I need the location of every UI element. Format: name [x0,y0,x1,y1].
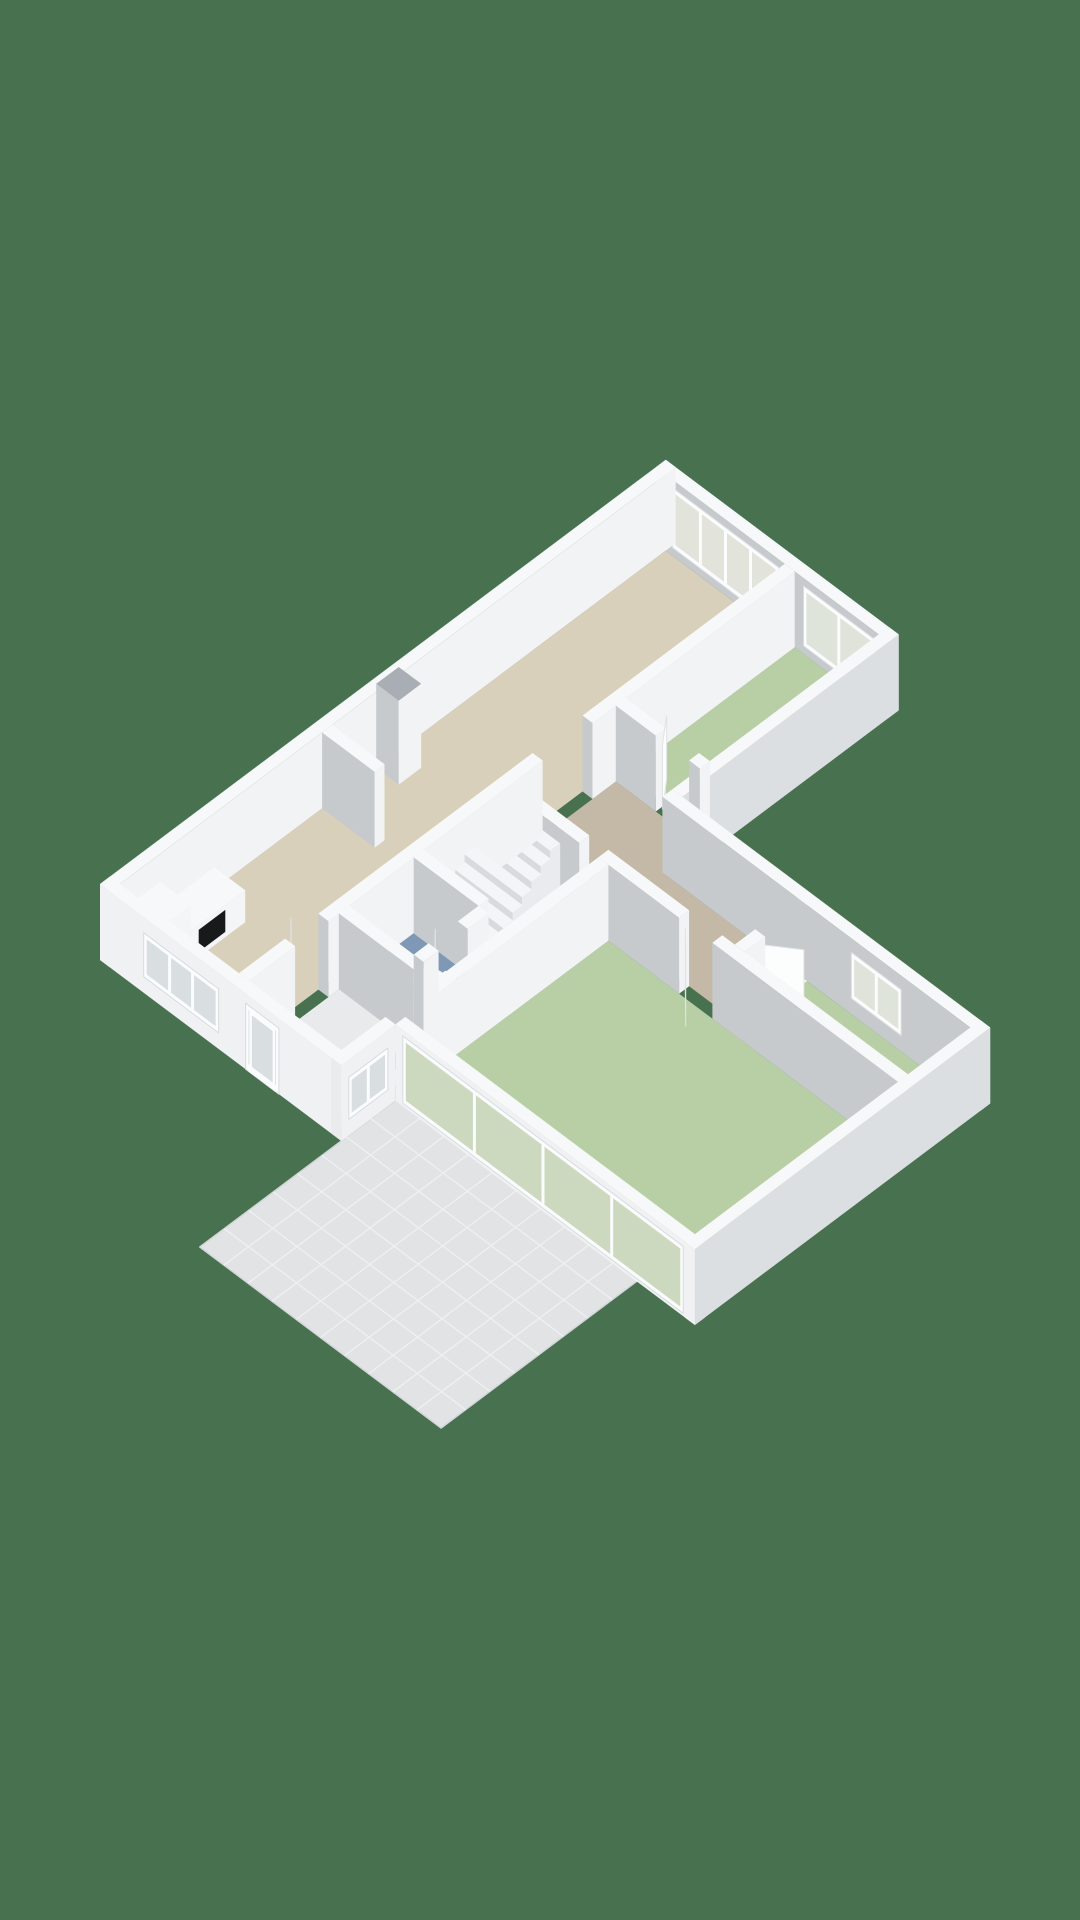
nw-wall-stub-se-face [375,764,385,848]
exterior-entrance-se-wall-sw-face [331,1058,341,1142]
wc-south-wall-a [414,943,439,1038]
partition-living-c-sw-face [583,716,593,800]
partition-living-b-sw-face [318,914,328,998]
wc-south-wall-a-se-face [424,951,439,1038]
chimney-column-se-face [399,684,422,785]
exterior-se-wing-wall-sw-face [685,1242,695,1325]
floorplan-3d-render [0,0,1080,1920]
hall-west-wall-b-se-face [679,910,689,994]
floorplan-page [0,0,1080,1920]
